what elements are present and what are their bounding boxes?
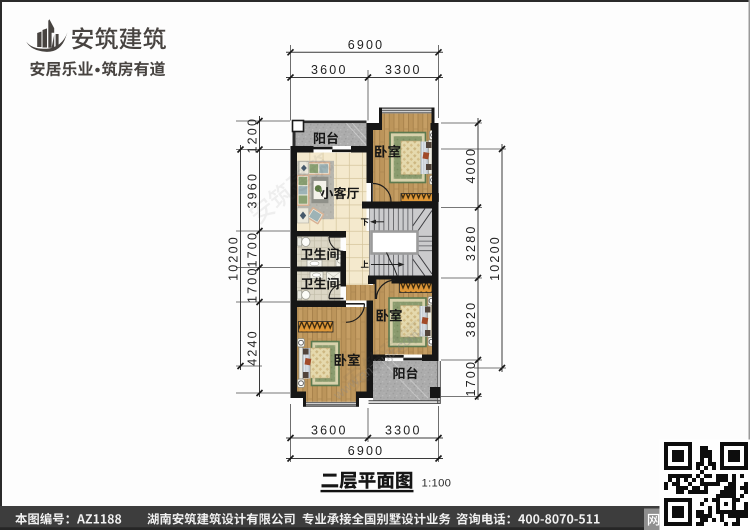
svg-text:3600: 3600 — [311, 423, 348, 437]
svg-text:10200: 10200 — [227, 235, 241, 281]
svg-text:4240: 4240 — [246, 329, 260, 366]
svg-text:1700: 1700 — [246, 266, 260, 303]
svg-text:1:100: 1:100 — [422, 478, 452, 490]
svg-text:6900: 6900 — [348, 444, 385, 458]
svg-text:3960: 3960 — [246, 172, 260, 209]
svg-text:1200: 1200 — [246, 117, 260, 154]
svg-text:1700: 1700 — [464, 360, 478, 397]
svg-text:3300: 3300 — [385, 63, 422, 77]
svg-text:3820: 3820 — [464, 301, 478, 338]
svg-text:10200: 10200 — [488, 235, 502, 281]
svg-text:4000: 4000 — [464, 147, 478, 184]
svg-text:3600: 3600 — [311, 63, 348, 77]
svg-text:3300: 3300 — [385, 423, 422, 437]
svg-text:1700: 1700 — [246, 231, 260, 268]
svg-text:3280: 3280 — [464, 224, 478, 261]
svg-text:6900: 6900 — [348, 38, 385, 52]
